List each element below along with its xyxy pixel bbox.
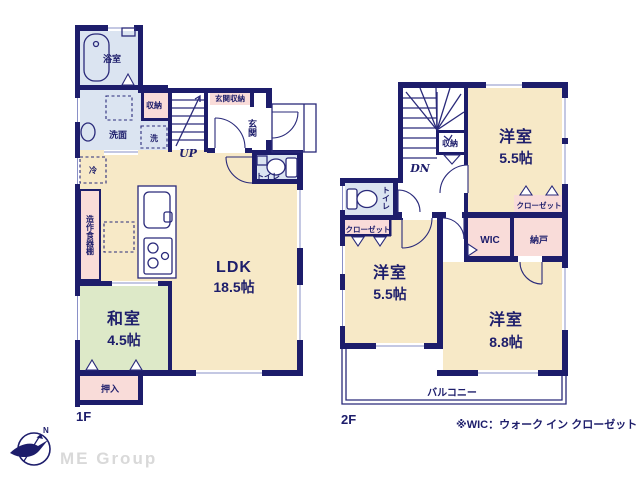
entrance-door-arc [272,112,298,138]
label-wic: WIC [480,235,499,246]
porch-outline [272,104,316,152]
label-ldk-size: 18.5帖 [213,279,254,295]
brand-watermark: ME Group [60,449,157,468]
stairs-up-icon [172,96,204,146]
compass-north-label: N [43,426,49,435]
label-bedroom2: 洋室 [373,263,407,282]
label-bedroom2-size: 5.5帖 [373,286,406,302]
label-closet-top: クローゼット [517,200,562,210]
room-washitsu [80,286,168,370]
label-closet-left: クローゼット [346,224,391,234]
label-storage-1f: 収納 [146,100,162,110]
footer: ※WIC：ウォーク イン クローゼット N ME Group [10,417,637,468]
compass-icon: N [10,426,50,465]
label-washitsu: 和室 [107,309,141,328]
label-cupboard: 造作食器棚 [85,214,95,256]
compass-bird [10,440,48,457]
label-toilet-1f: トイレ [256,172,280,181]
stairs-arrow-mark [444,155,460,164]
floor-plan-page: 浴室 収納 洗面 洗 玄関収納 玄関 UP トイレ 冷 造作食器棚 LDK 18… [0,0,640,480]
label-entrance: 玄関 [247,118,257,138]
label-fridge: 冷 [89,165,97,175]
label-storage-2f: 収納 [442,138,458,148]
label-toilet-2f: トイレ [382,186,391,210]
label-nando: 納戸 [530,234,548,245]
label-washitsu-size: 4.5帖 [107,332,140,348]
label-entrance-storage: 玄関収納 [215,93,245,103]
label-bedroom1: 洋室 [499,127,533,146]
label-stairs-up: UP [179,147,198,160]
bedroom1-door-arc [440,165,468,193]
label-washer: 洗 [150,133,158,143]
label-bedroom1-size: 5.5帖 [499,150,532,166]
toilet-tank-1f [286,158,297,177]
toilet-tank-2f [347,189,357,209]
floor-plan-drawing: 浴室 収納 洗面 洗 玄関収納 玄関 UP トイレ 冷 造作食器棚 LDK 18… [0,0,640,480]
floor-1-plan: 浴室 収納 洗面 洗 玄関収納 玄関 UP トイレ 冷 造作食器棚 LDK 18… [75,25,316,424]
wic-note: ※WIC：ウォーク イン クローゼット [456,417,637,431]
toilet-icon-2f [357,191,377,208]
corridor-door-arc [443,218,464,239]
label-stairs-down: DN [409,162,431,175]
label-bedroom3: 洋室 [489,310,523,329]
label-ldk: LDK [216,259,252,276]
label-oshiire: 押入 [101,383,119,394]
label-bedroom3-size: 8.8帖 [489,334,522,350]
label-washroom: 洗面 [109,129,127,140]
label-balcony: バルコニー [427,387,477,399]
floor-2-plan: DN 収納 トイレ 洋室 5.5帖 クローゼット クローゼット WIC 納戸 洋… [340,82,568,427]
floor-2-label: 2F [341,412,356,427]
label-bath: 浴室 [103,53,121,64]
toilet-door-arc-2f [398,190,420,212]
floor-1-label: 1F [76,409,91,424]
